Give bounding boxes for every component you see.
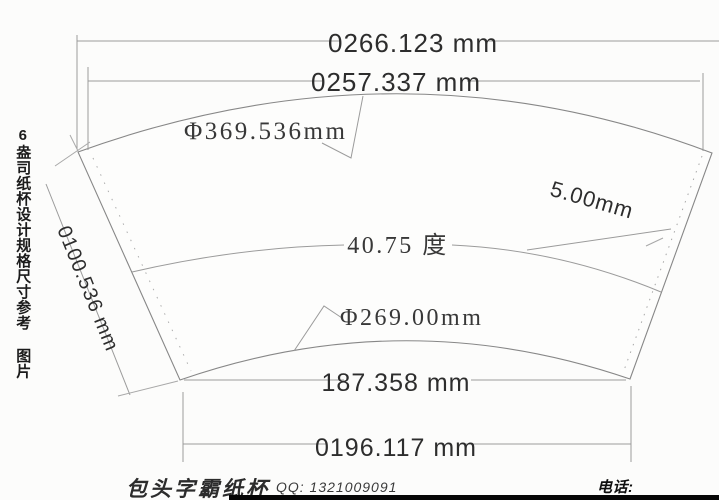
dim-inner-diameter-label: Φ269.00mm [340,305,483,331]
dim-bottom-chord-label: 187.358 mm [322,369,471,397]
dim-bottom-width: 0196.117 mm [183,386,631,462]
dim-angle-label: 40.75 度 [347,232,449,259]
dim-outer-width-label: 0266.123 mm [328,28,498,58]
dim-bottom-chord: 187.358 mm [184,369,626,397]
dim-bottom-width-label: 0196.117 mm [315,434,477,462]
drawing-canvas: 0266.123 mm 0257.337 mm Φ369.536mm 5.00m… [0,0,719,500]
dim-outer-diameter-label: Φ369.536mm [184,118,347,145]
side-caption-vertical: 6盎司纸杯设计规格尺寸参考 图片 [12,127,32,382]
dim-mouth-width-label: 0257.337 mm [311,67,481,97]
footer-qq: QQ: 1321009091 [276,479,397,495]
cup-fan-drawing: 0266.123 mm 0257.337 mm Φ369.536mm 5.00m… [0,0,719,500]
bottom-black-bar [229,495,719,500]
dim-slant-height-label: 0100.536 mm [52,223,122,355]
